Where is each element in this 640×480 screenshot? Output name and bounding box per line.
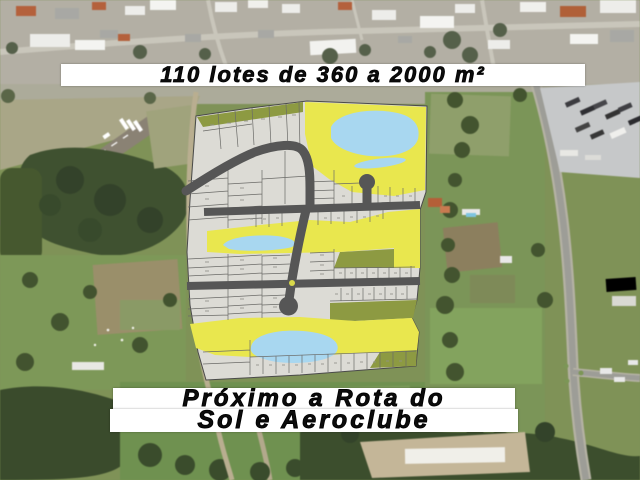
top-banner-text: 110 lotes de 360 a 2000 m²	[160, 62, 486, 88]
shed	[72, 362, 104, 370]
mini-roundabout	[289, 280, 295, 286]
orange-roof-house	[428, 198, 442, 207]
subdivision-plat	[186, 101, 427, 380]
cul-de-sac-top	[359, 174, 375, 190]
cul-de-sac-bottom	[279, 297, 298, 316]
real-estate-ad-image: 110 lotes de 360 a 2000 m² Próximo a Rot…	[0, 0, 640, 480]
construction-roof	[405, 447, 505, 464]
top-banner: 110 lotes de 360 a 2000 m²	[61, 64, 585, 86]
street-lower-horizontal	[187, 281, 420, 286]
pond-large-bottom	[251, 331, 338, 363]
bottom-banner-line2: Sol e Aeroclube	[110, 409, 518, 432]
bottom-banner-line2-text: Sol e Aeroclube	[197, 406, 430, 435]
fields-left	[0, 255, 186, 390]
swimming-pool	[466, 213, 476, 217]
